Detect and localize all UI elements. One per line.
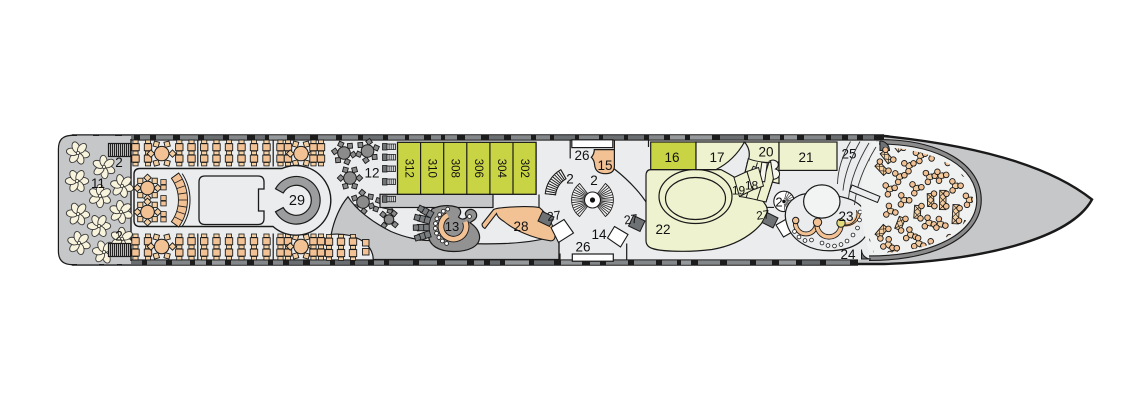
svg-text:27: 27 xyxy=(546,208,562,224)
svg-text:306: 306 xyxy=(472,159,484,178)
svg-text:2: 2 xyxy=(115,155,123,170)
svg-text:12: 12 xyxy=(364,166,379,181)
svg-text:29: 29 xyxy=(289,193,305,209)
svg-text:14: 14 xyxy=(591,227,607,242)
svg-text:28: 28 xyxy=(513,219,528,234)
svg-text:308: 308 xyxy=(449,159,461,178)
svg-text:25: 25 xyxy=(841,147,856,162)
svg-text:304: 304 xyxy=(495,159,507,179)
svg-text:13: 13 xyxy=(445,219,459,234)
svg-text:310: 310 xyxy=(426,159,438,178)
svg-text:26: 26 xyxy=(574,148,589,163)
svg-text:21: 21 xyxy=(798,150,813,165)
svg-text:24: 24 xyxy=(840,247,856,262)
svg-text:312: 312 xyxy=(403,159,415,178)
svg-text:15: 15 xyxy=(597,158,612,173)
svg-text:18: 18 xyxy=(745,179,759,193)
svg-text:19: 19 xyxy=(732,184,746,198)
svg-text:22: 22 xyxy=(655,222,670,237)
svg-text:16: 16 xyxy=(664,150,679,165)
svg-text:2: 2 xyxy=(566,172,574,187)
svg-text:27: 27 xyxy=(623,212,639,228)
svg-text:2: 2 xyxy=(775,195,782,210)
svg-text:26: 26 xyxy=(575,240,590,255)
svg-text:2: 2 xyxy=(590,173,598,188)
svg-text:17: 17 xyxy=(709,150,724,165)
svg-text:23: 23 xyxy=(838,209,853,224)
svg-text:11: 11 xyxy=(91,176,105,191)
svg-text:20: 20 xyxy=(758,145,773,160)
svg-text:302: 302 xyxy=(518,159,530,178)
svg-text:2: 2 xyxy=(115,229,123,244)
svg-text:27: 27 xyxy=(755,207,770,223)
